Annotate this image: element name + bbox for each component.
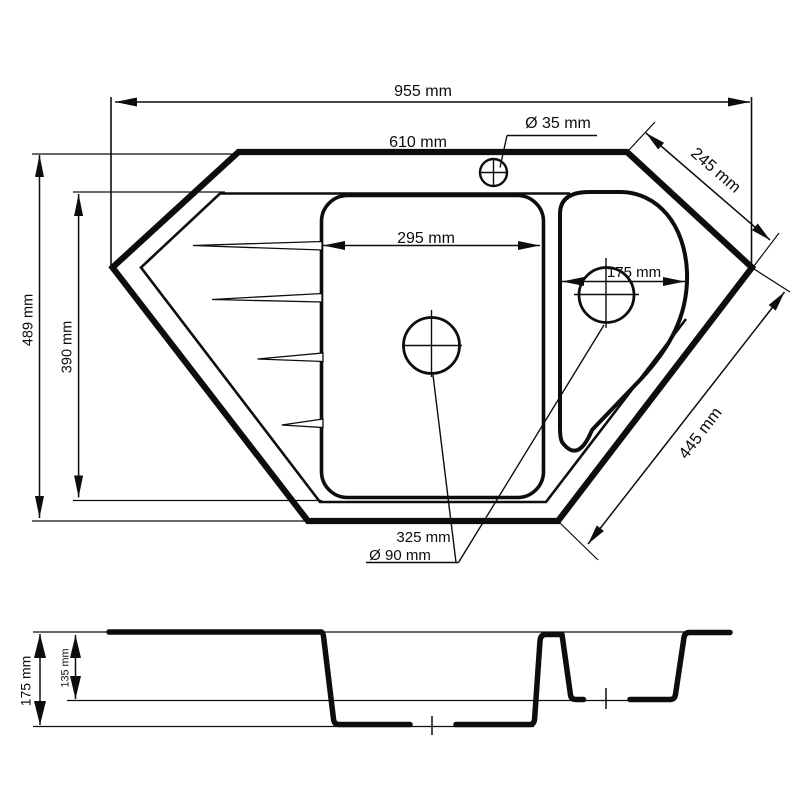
svg-text:610 mm: 610 mm (389, 134, 447, 151)
svg-text:175 mm: 175 mm (18, 656, 34, 707)
svg-text:489 mm: 489 mm (21, 294, 37, 346)
svg-text:135 mm: 135 mm (60, 648, 72, 687)
svg-text:Ø 90 mm: Ø 90 mm (369, 547, 431, 564)
svg-text:175 mm: 175 mm (607, 264, 661, 281)
svg-text:955 mm: 955 mm (394, 83, 452, 100)
svg-text:325 mm: 325 mm (396, 529, 450, 546)
svg-text:Ø 35 mm: Ø 35 mm (525, 115, 591, 132)
svg-text:295 mm: 295 mm (397, 230, 455, 247)
svg-text:390 mm: 390 mm (60, 321, 76, 373)
